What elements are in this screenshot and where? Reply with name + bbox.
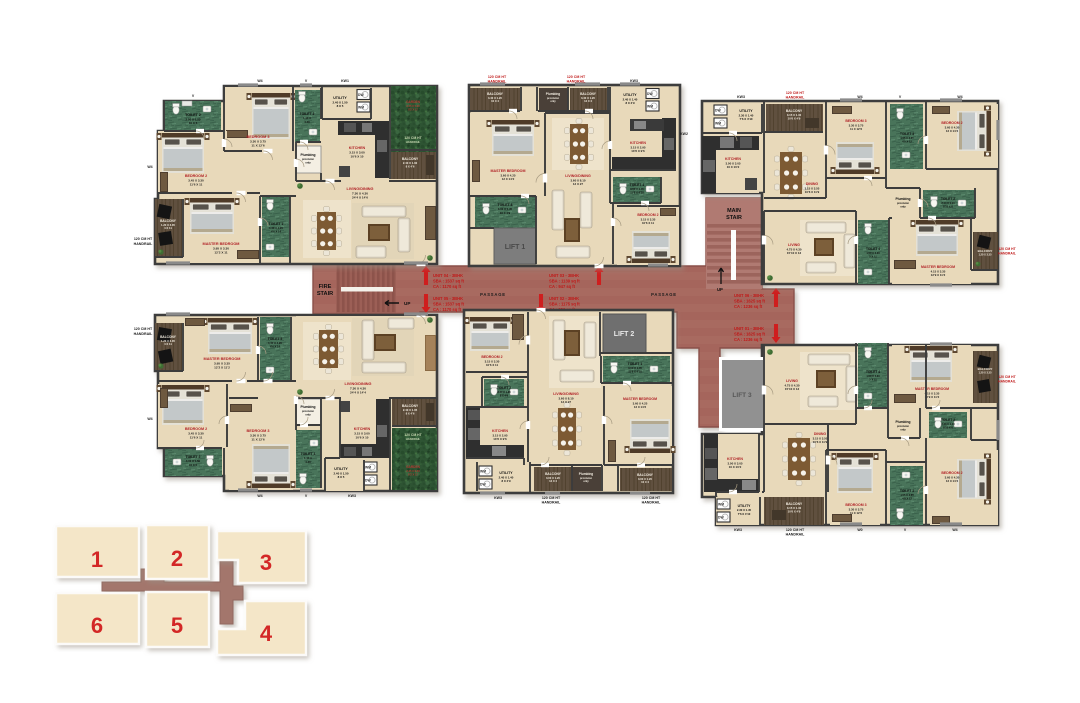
svg-text:WM: WM — [647, 105, 653, 109]
svg-text:120 CM HT: 120 CM HT — [542, 496, 561, 500]
svg-text:3.50 X 1.45: 3.50 X 1.45 — [628, 366, 642, 370]
svg-text:Plumbing: Plumbing — [300, 153, 315, 157]
svg-text:BALCONY: BALCONY — [580, 92, 597, 96]
svg-text:BALCONY: BALCONY — [160, 335, 177, 339]
svg-text:5 X 11: 5 X 11 — [869, 377, 877, 381]
svg-text:SBA : 1537 sq ft: SBA : 1537 sq ft — [433, 278, 465, 283]
svg-text:11 X 12’6: 11 X 12’6 — [251, 438, 264, 442]
svg-text:HANDRAIL: HANDRAIL — [786, 533, 806, 537]
svg-text:5: 5 — [171, 613, 183, 638]
svg-text:8 X 5: 8 X 5 — [338, 475, 345, 479]
svg-text:WM: WM — [715, 122, 721, 126]
svg-text:UP: UP — [717, 287, 723, 292]
svg-text:LIFT 2: LIFT 2 — [614, 331, 635, 338]
svg-text:W4: W4 — [952, 528, 957, 532]
svg-text:10’6 X 9’6: 10’6 X 9’6 — [493, 437, 507, 441]
svg-text:4’6 X 14: 4’6 X 14 — [270, 345, 281, 349]
svg-text:STAIR: STAIR — [726, 215, 742, 221]
svg-text:4’6 X 14: 4’6 X 14 — [271, 230, 282, 234]
svg-text:SBA : 1139 sq ft: SBA : 1139 sq ft — [549, 278, 580, 283]
svg-text:DW: DW — [358, 93, 364, 97]
svg-text:only: only — [550, 99, 556, 103]
svg-text:4.20: 4.20 — [305, 460, 311, 464]
svg-text:DW: DW — [715, 109, 721, 113]
svg-text:Plumbing: Plumbing — [300, 405, 315, 409]
svg-text:4.20: 4.20 — [304, 120, 310, 124]
svg-text:5 X 11: 5 X 11 — [869, 254, 877, 258]
svg-text:STAIR: STAIR — [317, 291, 333, 297]
svg-text:10 X 4’9: 10 X 4’9 — [500, 211, 511, 215]
svg-text:KITCHEN: KITCHEN — [727, 457, 743, 461]
svg-text:8’2 X 17: 8’2 X 17 — [408, 472, 418, 476]
svg-text:HANDRAIL: HANDRAIL — [542, 501, 562, 505]
svg-text:UTILITY: UTILITY — [334, 467, 348, 471]
svg-text:W4: W4 — [147, 417, 152, 421]
svg-text:11’6 X 11: 11’6 X 11 — [190, 435, 203, 439]
svg-text:TOILET 5: TOILET 5 — [268, 337, 283, 341]
svg-text:SBA : 1625 sq ft: SBA : 1625 sq ft — [734, 298, 766, 303]
svg-text:4 X 11: 4 X 11 — [164, 226, 172, 230]
svg-text:8’2 X 17: 8’2 X 17 — [408, 107, 418, 111]
svg-text:8’10 X 8: 8’10 X 8 — [943, 204, 953, 208]
svg-text:PASSAGE: PASSAGE — [651, 292, 677, 297]
svg-text:KW3: KW3 — [630, 79, 638, 83]
svg-text:provision: provision — [302, 157, 314, 161]
svg-text:11 X 12’6: 11 X 12’6 — [251, 144, 264, 148]
svg-text:LIVING/DINING: LIVING/DINING — [553, 392, 579, 396]
svg-text:only: only — [900, 205, 906, 209]
svg-text:TOILET 4: TOILET 4 — [866, 370, 880, 374]
svg-text:provision: provision — [897, 424, 909, 428]
svg-text:CA : 947 sq ft: CA : 947 sq ft — [549, 284, 576, 289]
svg-text:BEDROOM 3: BEDROOM 3 — [247, 135, 270, 139]
svg-text:12 X 27: 12 X 27 — [573, 182, 583, 186]
svg-text:HANDRAIL: HANDRAIL — [488, 80, 508, 84]
svg-text:2.44 X 1.10: 2.44 X 1.10 — [941, 422, 955, 426]
svg-text:10 X 5: 10 X 5 — [189, 463, 197, 467]
svg-text:BALCONY: BALCONY — [978, 249, 993, 253]
svg-text:BALCONY: BALCONY — [160, 219, 177, 223]
svg-text:provision: provision — [302, 409, 314, 413]
svg-text:UTILITY: UTILITY — [333, 96, 347, 100]
svg-text:GARDEN: GARDEN — [406, 100, 421, 104]
svg-text:4’9 X 12: 4’9 X 12 — [902, 139, 912, 143]
svg-text:11’6 X 4’10: 11’6 X 4’10 — [630, 191, 644, 195]
svg-text:1.55 X 3.65: 1.55 X 3.65 — [900, 493, 914, 497]
svg-text:12 X 14’2: 12 X 14’2 — [502, 177, 515, 181]
svg-text:HANDRAIL: HANDRAIL — [134, 242, 154, 246]
svg-text:WM: WM — [480, 470, 486, 474]
svg-text:HANDRAIL: HANDRAIL — [567, 80, 587, 84]
svg-text:UNIT 04 - 3BHK: UNIT 04 - 3BHK — [433, 273, 463, 278]
svg-text:W4: W4 — [957, 95, 962, 99]
svg-text:SBA : 1175 sq ft: SBA : 1175 sq ft — [549, 301, 580, 306]
svg-text:TOILET 2: TOILET 2 — [941, 197, 955, 201]
svg-text:BALCONY: BALCONY — [637, 473, 654, 477]
svg-text:KW3: KW3 — [737, 95, 745, 99]
svg-text:HANDRAIL: HANDRAIL — [642, 501, 662, 505]
svg-text:TOILET 2: TOILET 2 — [185, 113, 201, 117]
svg-text:BALCONY: BALCONY — [487, 92, 504, 96]
svg-text:120 CM HT: 120 CM HT — [786, 528, 805, 532]
svg-text:GARDEN: GARDEN — [406, 465, 421, 469]
svg-text:SBA : 1537 sq ft: SBA : 1537 sq ft — [433, 301, 465, 306]
svg-text:1.40 X 4.20: 1.40 X 4.20 — [269, 226, 283, 230]
svg-text:8 X 4’9: 8 X 4’9 — [625, 101, 634, 105]
svg-text:11 X 12’6: 11 X 12’6 — [850, 127, 862, 131]
svg-text:10 X 10’2: 10 X 10’2 — [727, 165, 740, 169]
svg-text:1.55 X 3.65: 1.55 X 3.65 — [900, 136, 914, 140]
svg-text:2.45 X 5.30: 2.45 X 5.30 — [406, 104, 420, 108]
svg-text:12’9 X 11’2: 12’9 X 11’2 — [931, 273, 946, 277]
svg-text:Plumbing: Plumbing — [579, 472, 594, 476]
svg-text:BEDROOM 2: BEDROOM 2 — [185, 174, 207, 178]
svg-text:TOILET 3: TOILET 3 — [900, 489, 914, 493]
svg-text:24’4 X 14’4: 24’4 X 14’4 — [350, 391, 366, 395]
svg-text:MASTER BEDROOM: MASTER BEDROOM — [204, 357, 241, 361]
svg-text:3.50 X 1.45: 3.50 X 1.45 — [630, 187, 644, 191]
svg-text:120 CM HT: 120 CM HT — [998, 375, 1016, 379]
svg-text:KITCHEN: KITCHEN — [349, 146, 366, 150]
svg-text:W4: W4 — [257, 494, 262, 498]
svg-text:11’6 X 11: 11’6 X 11 — [190, 182, 203, 186]
svg-text:KW2: KW2 — [680, 132, 688, 136]
svg-text:10’6 X 11: 10’6 X 11 — [486, 363, 498, 367]
svg-text:1.20 X 3.35: 1.20 X 3.35 — [978, 253, 992, 257]
svg-text:TOILET 1: TOILET 1 — [628, 362, 643, 366]
svg-text:only: only — [305, 413, 311, 417]
svg-text:FIRE: FIRE — [319, 284, 332, 290]
svg-text:KITCHEN: KITCHEN — [492, 429, 508, 433]
svg-text:HANDRAIL: HANDRAIL — [406, 437, 421, 441]
svg-text:4’9 X 12: 4’9 X 12 — [902, 496, 912, 500]
svg-text:provision: provision — [897, 201, 909, 205]
svg-text:10’6 X 4’9: 10’6 X 4’9 — [788, 116, 801, 120]
svg-text:MAIN: MAIN — [727, 208, 741, 214]
svg-text:DW: DW — [647, 92, 653, 96]
svg-text:10 X 4: 10 X 4 — [491, 99, 499, 103]
svg-text:2.40 X 1.35: 2.40 X 1.35 — [497, 390, 511, 394]
svg-text:10 X 10’2: 10 X 10’2 — [729, 465, 742, 469]
svg-text:LIVING/DINING: LIVING/DINING — [565, 174, 591, 178]
svg-text:UNIT 02 - 3BHK: UNIT 02 - 3BHK — [549, 296, 579, 301]
svg-text:UP: UP — [404, 301, 410, 306]
svg-text:2.44 X 1.10: 2.44 X 1.10 — [941, 201, 955, 205]
svg-text:KITCHEN: KITCHEN — [725, 157, 741, 161]
svg-text:TOILET 4: TOILET 4 — [866, 247, 880, 251]
svg-text:10’6 X 11’9: 10’6 X 11’9 — [813, 440, 828, 444]
svg-text:HANDRAIL: HANDRAIL — [786, 96, 806, 100]
svg-text:UNIT 03 - 3BHK: UNIT 03 - 3BHK — [549, 273, 579, 278]
svg-text:3: 3 — [260, 550, 272, 575]
svg-text:4: 4 — [260, 621, 273, 646]
svg-text:1: 1 — [91, 547, 103, 572]
svg-text:BEDROOM 2: BEDROOM 2 — [185, 427, 207, 431]
svg-text:1.40 X 4.20: 1.40 X 4.20 — [268, 341, 282, 345]
svg-text:12 X 4: 12 X 4 — [549, 479, 557, 483]
svg-text:only: only — [583, 479, 589, 483]
svg-text:BALCONY: BALCONY — [545, 472, 562, 476]
svg-text:TOILET 2: TOILET 2 — [497, 386, 511, 390]
svg-text:WM: WM — [718, 503, 724, 507]
svg-text:15’10 X 13: 15’10 X 13 — [785, 387, 800, 391]
svg-text:TOILET 1: TOILET 1 — [269, 222, 284, 226]
svg-text:120 CM HT: 120 CM HT — [642, 496, 661, 500]
svg-text:1.20 X 3.35: 1.20 X 3.35 — [978, 371, 992, 375]
svg-text:12 X 27: 12 X 27 — [561, 400, 571, 404]
svg-text:1.50 X 3.30: 1.50 X 3.30 — [866, 251, 880, 255]
svg-text:WM: WM — [358, 106, 364, 110]
svg-text:10’6 X 10: 10’6 X 10 — [351, 154, 364, 158]
svg-text:120 CM HT: 120 CM HT — [488, 75, 507, 79]
svg-text:W4: W4 — [257, 79, 262, 83]
svg-text:12’2 X 11: 12’2 X 11 — [214, 251, 227, 255]
svg-text:10’6 X 11: 10’6 X 11 — [642, 221, 654, 225]
svg-text:120 CM HT: 120 CM HT — [134, 327, 153, 331]
svg-text:12 X 14’2: 12 X 14’2 — [634, 405, 647, 409]
svg-text:10’6 X 11’9: 10’6 X 11’9 — [805, 190, 820, 194]
svg-text:WM: WM — [365, 466, 371, 470]
svg-text:8 X 4’6: 8 X 4’6 — [500, 393, 509, 397]
svg-text:Plumbing: Plumbing — [546, 92, 561, 96]
svg-text:8’10 X 8: 8’10 X 8 — [943, 425, 953, 429]
svg-text:W4: W4 — [857, 95, 862, 99]
svg-text:BEDROOM 3: BEDROOM 3 — [247, 429, 270, 433]
svg-text:only: only — [900, 428, 906, 432]
svg-text:120 CM HT: 120 CM HT — [998, 247, 1016, 251]
svg-text:120 CM HT: 120 CM HT — [134, 237, 153, 241]
svg-text:SBA : 1625 sq ft: SBA : 1625 sq ft — [734, 331, 766, 336]
svg-text:Plumbing: Plumbing — [895, 197, 910, 201]
svg-text:CA : 1236 sq ft: CA : 1236 sq ft — [734, 337, 763, 342]
svg-text:KW3: KW3 — [734, 528, 742, 532]
svg-text:10’6 X 10: 10’6 X 10 — [356, 435, 369, 439]
svg-text:15’10 X 13: 15’10 X 13 — [787, 251, 802, 255]
svg-text:MASTER BEDROOM: MASTER BEDROOM — [203, 242, 240, 246]
svg-text:LIVING/DINING: LIVING/DINING — [346, 187, 373, 191]
svg-text:120 CM HT: 120 CM HT — [567, 75, 586, 79]
svg-text:BALCONY: BALCONY — [978, 367, 993, 371]
svg-text:12 X 4: 12 X 4 — [584, 99, 592, 103]
svg-text:8 X 4’9: 8 X 4’9 — [501, 479, 510, 483]
svg-text:TOILET 1: TOILET 1 — [630, 183, 645, 187]
svg-text:HANDRAIL: HANDRAIL — [998, 380, 1016, 384]
svg-text:LIVING: LIVING — [786, 379, 798, 383]
svg-text:2.45 X 5.30: 2.45 X 5.30 — [406, 469, 420, 473]
svg-text:12 X 14’4: 12 X 14’4 — [946, 129, 959, 133]
svg-text:7’6 X 4’10: 7’6 X 4’10 — [739, 117, 752, 121]
svg-text:LIFT 1: LIFT 1 — [505, 244, 526, 251]
svg-text:TOILET 2: TOILET 2 — [941, 418, 955, 422]
svg-text:8 X 4’6: 8 X 4’6 — [406, 411, 415, 415]
svg-text:7’6 X 4’10: 7’6 X 4’10 — [738, 512, 751, 516]
svg-text:DW: DW — [480, 483, 486, 487]
svg-text:CA : 1170 sq ft: CA : 1170 sq ft — [433, 307, 462, 312]
svg-text:6: 6 — [91, 613, 103, 638]
svg-text:120 CM HT: 120 CM HT — [786, 91, 805, 95]
svg-text:KITCHEN: KITCHEN — [354, 427, 371, 431]
svg-text:11 X 12’6: 11 X 12’6 — [850, 511, 862, 515]
svg-text:4 X 11: 4 X 11 — [164, 342, 172, 346]
svg-text:12’2 X 11’2: 12’2 X 11’2 — [214, 366, 230, 370]
svg-text:HANDRAIL: HANDRAIL — [406, 140, 421, 144]
svg-text:LIFT 3: LIFT 3 — [732, 392, 752, 399]
svg-text:Plumbing: Plumbing — [895, 420, 910, 424]
svg-text:24’4 X 14’6: 24’4 X 14’6 — [352, 196, 368, 200]
svg-text:11’6 X 4’10: 11’6 X 4’10 — [628, 370, 642, 374]
svg-text:MASTER BEDROOM: MASTER BEDROOM — [491, 169, 526, 173]
svg-text:12 X 14’4: 12 X 14’4 — [946, 479, 959, 483]
svg-text:12’9 X 11’2: 12’9 X 11’2 — [925, 395, 940, 399]
svg-text:CA : 1170 sq ft: CA : 1170 sq ft — [433, 284, 462, 289]
svg-text:CA : 1236 sq ft: CA : 1236 sq ft — [734, 304, 763, 309]
svg-text:KW1: KW1 — [341, 79, 349, 83]
svg-text:LIVING: LIVING — [788, 243, 800, 247]
svg-text:TOILET 3: TOILET 3 — [900, 132, 914, 136]
svg-text:8 X 4’6: 8 X 4’6 — [406, 164, 415, 168]
svg-text:W0: W0 — [857, 528, 862, 532]
svg-text:DW: DW — [365, 479, 371, 483]
svg-text:DW: DW — [718, 516, 724, 520]
svg-text:HANDRAIL: HANDRAIL — [134, 332, 154, 336]
svg-text:KW3: KW3 — [348, 494, 356, 498]
svg-text:UNIT 05 - 3BHK: UNIT 05 - 3BHK — [433, 296, 463, 301]
svg-text:10 X 4: 10 X 4 — [641, 480, 649, 484]
svg-text:10’6 X 4’9: 10’6 X 4’9 — [788, 509, 801, 513]
svg-text:LIVING/DINING: LIVING/DINING — [344, 382, 371, 386]
svg-text:KW3: KW3 — [494, 496, 502, 500]
svg-text:UNIT 06 - 3BHK: UNIT 06 - 3BHK — [734, 293, 764, 298]
svg-text:KITCHEN: KITCHEN — [630, 141, 646, 145]
svg-text:W4: W4 — [147, 165, 152, 169]
svg-text:PASSAGE: PASSAGE — [480, 292, 506, 297]
svg-text:10’6 X 9’6: 10’6 X 9’6 — [631, 149, 645, 153]
svg-text:10 X 5: 10 X 5 — [189, 121, 198, 125]
svg-text:8 X 5: 8 X 5 — [337, 104, 344, 108]
svg-text:HANDRAIL: HANDRAIL — [998, 252, 1016, 256]
svg-text:UNIT 01 - 3BHK: UNIT 01 - 3BHK — [734, 326, 764, 331]
svg-text:only: only — [305, 161, 311, 165]
svg-text:1.50 X 3.30: 1.50 X 3.30 — [866, 374, 880, 378]
svg-text:2: 2 — [171, 546, 183, 571]
